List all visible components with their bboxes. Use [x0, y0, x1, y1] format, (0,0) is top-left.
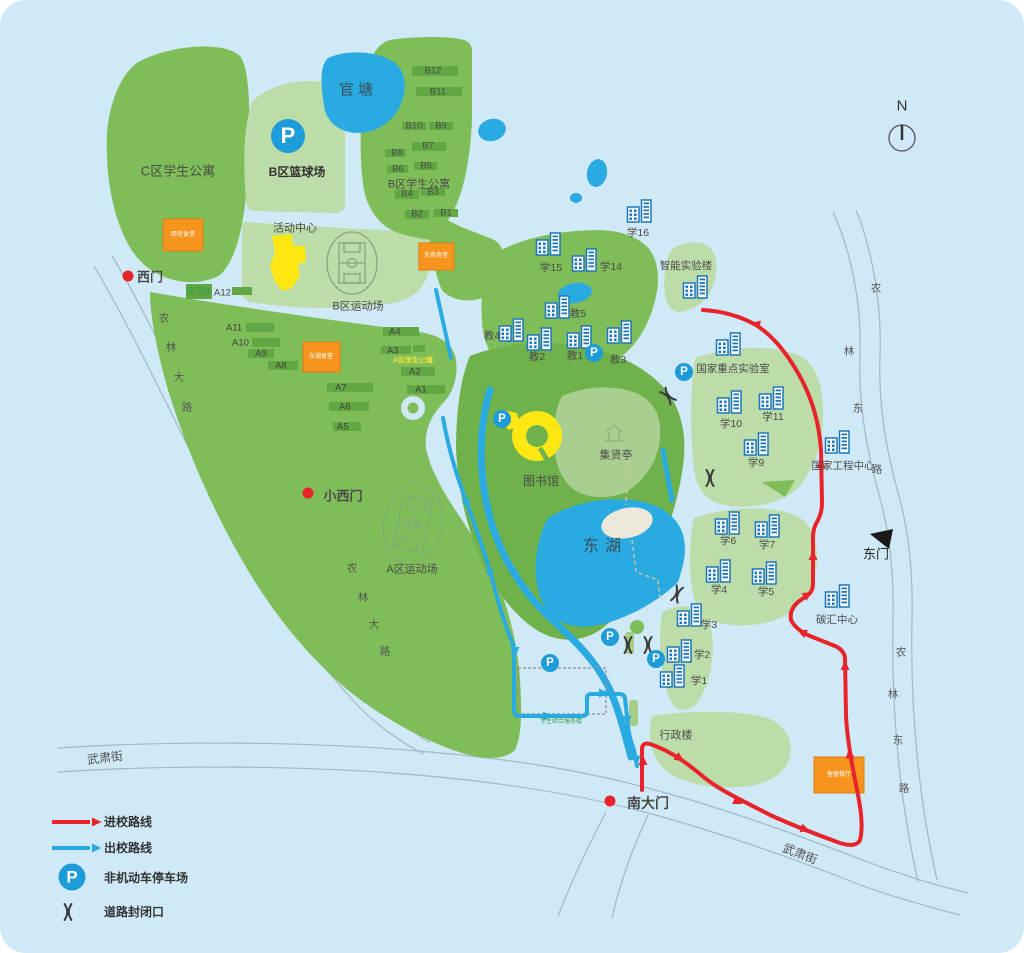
legend-closure-label: 道路封闭口	[104, 906, 164, 918]
closure-icon	[671, 585, 683, 602]
pond-small-2	[585, 157, 610, 188]
parking-icon: P	[675, 363, 693, 381]
a6-label: A6	[339, 402, 351, 412]
compass	[889, 125, 915, 151]
xue4-label: 学4	[711, 585, 727, 596]
xue3-label: 学3	[701, 620, 717, 631]
b2-label: B2	[411, 209, 423, 219]
security-label: 保卫处	[186, 287, 212, 296]
a3-label: A3	[387, 346, 399, 356]
nonglin-east-char: 东	[853, 401, 864, 416]
south-gate-label: 南大门	[627, 796, 669, 810]
parcel-smart-lab	[664, 242, 716, 312]
jiao4-label: 教4	[484, 331, 500, 342]
roundabout-inner	[408, 403, 419, 414]
jiao5-label: 教5	[570, 309, 586, 320]
small-west-gate-label: 小西门	[323, 490, 362, 503]
nonglin-main-char: 农	[347, 561, 358, 576]
key-lab-label: 国家重点实验室	[696, 364, 770, 375]
b4-label: B4	[401, 189, 413, 199]
b5-label: B5	[420, 161, 432, 171]
eng-center-label: 国家工程中心	[812, 461, 875, 472]
jiao2-label: 教2	[529, 352, 545, 363]
carbon-center-label: 碳汇中心	[816, 615, 858, 626]
nonglin-east-char: 路	[872, 462, 883, 477]
a9-label: A9	[255, 349, 267, 359]
xue2-label: 学2	[694, 650, 710, 661]
activity-center-label: 活动中心	[273, 224, 317, 235]
nonglin-main-char: 路	[182, 400, 193, 415]
admin-label: 行政楼	[660, 731, 693, 742]
a-sports-label: A区运动场	[386, 565, 437, 576]
a5-label: A5	[337, 422, 349, 432]
campus-map-page: P P P P P P P P 西门 小西门 南大门 东门 官塘 东湖 C区学生…	[0, 0, 1024, 953]
building-icon	[628, 200, 652, 222]
xue5-label: 学5	[758, 587, 774, 598]
service-label: 学生综合服务楼	[540, 719, 582, 725]
donghu-label: 东湖	[583, 539, 627, 555]
legend-symbols	[52, 818, 102, 853]
canteen-west-label: 西径食堂	[171, 232, 195, 238]
compass-n-label: N	[897, 99, 908, 114]
jiao3-label: 教3	[610, 355, 626, 366]
a1-label: A1	[415, 385, 427, 395]
west-gate-dot	[123, 271, 134, 282]
parking-icon: P	[271, 119, 305, 153]
parking-icon-legend: P	[59, 864, 86, 891]
xue14-label: 学14	[600, 262, 622, 273]
b-sports-label: B区运动场	[332, 302, 383, 313]
b-basketball-label: B区篮球场	[269, 166, 326, 178]
nonglin-main-char: 林	[358, 590, 369, 605]
nonglin-main-char: 林	[166, 340, 177, 355]
south-gate-dot	[605, 796, 616, 807]
xue7-label: 学7	[759, 540, 775, 551]
building-icon	[717, 333, 741, 355]
a11-label: A11	[226, 323, 242, 333]
junction-circle	[630, 620, 644, 634]
building-icon	[826, 585, 850, 607]
map-shapes	[0, 0, 1024, 953]
nonglin-east-char: 农	[896, 645, 907, 660]
parking-icon: P	[647, 650, 665, 668]
parcels	[107, 37, 823, 788]
parking-icon: P	[541, 654, 559, 672]
campus-map: P P P P P P P P 西门 小西门 南大门 东门 官塘 东湖 C区学生…	[0, 0, 1024, 953]
canteen-b-label: 东苑食堂	[424, 253, 448, 259]
east-gate-label: 东门	[863, 548, 889, 561]
b6-label: B6	[392, 164, 404, 174]
pond-small-3	[570, 193, 582, 203]
b7-label: B7	[422, 141, 434, 151]
c-apartments-label: C区学生公寓	[141, 165, 215, 178]
parcel-admin	[650, 712, 791, 788]
nonglin-main-char: 大	[369, 617, 380, 632]
nonglin-east-char: 林	[888, 687, 899, 702]
library-label: 图书馆	[523, 475, 559, 487]
road-south-stub2	[612, 815, 648, 918]
b12-label: B12	[425, 66, 442, 76]
parking-icon: P	[601, 628, 619, 646]
legend-exit-route-label: 出校路线	[104, 842, 152, 854]
service-building-outline	[518, 668, 606, 714]
b10-label: B10	[406, 121, 423, 131]
a4-label: A4	[389, 327, 401, 337]
nonglin-main-char: 路	[380, 644, 391, 659]
pond-small-1	[476, 116, 509, 144]
nonglin-east-char: 农	[871, 281, 882, 296]
canteen-south-label: 留香餐厅	[827, 772, 851, 778]
a2-label: A2	[409, 367, 421, 377]
pavilion-label: 集贤亭	[600, 451, 633, 462]
a7-label: A7	[335, 383, 347, 393]
xue1-label: 学1	[691, 676, 707, 687]
median-strip	[629, 700, 638, 726]
nonglin-main-char: 农	[159, 311, 170, 326]
road-nonglin-east-line2	[856, 210, 937, 880]
b1-label: B1	[440, 208, 452, 218]
xue16-label: 学16	[627, 228, 649, 239]
library-building-hole	[526, 425, 548, 447]
small-west-gate-dot	[303, 488, 314, 499]
guantang-label: 官塘	[339, 83, 377, 98]
b-apartments-label: B区学生公寓	[388, 180, 450, 191]
xue15-label: 学15	[540, 263, 562, 274]
canteen-donghu-label: 东湖食堂	[309, 354, 333, 360]
b3-label: B3	[427, 187, 439, 197]
b8-label: B8	[391, 148, 403, 158]
nonglin-main-char: 大	[174, 370, 185, 385]
xue9-label: 学9	[748, 458, 764, 469]
xue10-label: 学10	[720, 419, 742, 430]
road-south-stub1	[558, 812, 606, 916]
smart-lab-label: 智能实验楼	[660, 261, 713, 272]
parking-icon: P	[493, 410, 511, 428]
a10-label: A10	[232, 338, 249, 348]
parking-icon: P	[585, 344, 603, 362]
legend-entry-route-label: 进校路线	[104, 816, 152, 828]
a8-label: A8	[275, 361, 287, 371]
nonglin-east-char: 东	[893, 733, 904, 748]
building-icon	[826, 431, 850, 453]
nonglin-east-char: 路	[899, 781, 910, 796]
a12-label: A12	[214, 288, 231, 298]
west-gate-label: 西门	[137, 271, 163, 284]
b11-label: B11	[430, 87, 446, 97]
closure-icon-legend	[65, 904, 72, 920]
legend-parking-label: 非机动车停车场	[104, 872, 188, 884]
xue6-label: 学6	[720, 536, 736, 547]
jiao1-label: 教1	[567, 351, 583, 362]
nonglin-east-char: 林	[844, 344, 855, 359]
a-apartments-label: A区学生公寓	[393, 358, 433, 365]
b9-label: B9	[435, 121, 447, 131]
xue11-label: 学11	[762, 412, 783, 423]
